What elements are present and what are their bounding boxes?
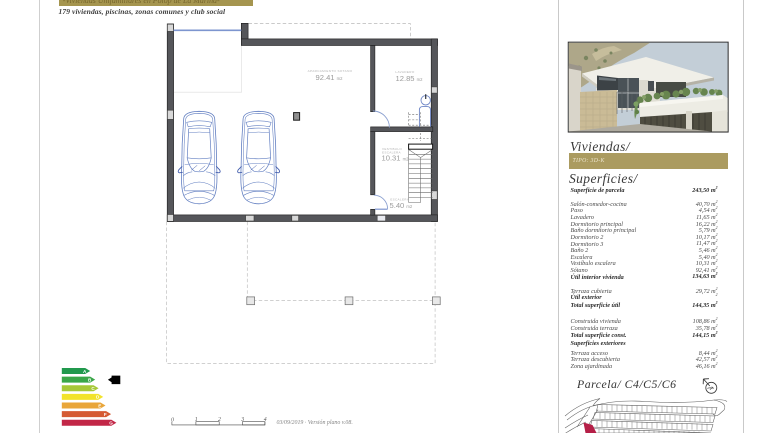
svg-text:10.31 m2: 10.31 m2 <box>382 154 410 163</box>
svg-text:12.85 m2: 12.85 m2 <box>396 74 424 83</box>
svg-text:G: G <box>109 421 113 426</box>
svg-text:2: 2 <box>218 417 221 423</box>
svg-text:E: E <box>98 403 101 408</box>
svg-text:4: 4 <box>264 416 267 423</box>
svg-text:1: 1 <box>195 417 198 423</box>
svg-text:F: F <box>104 412 107 417</box>
svg-text:0: 0 <box>171 417 174 423</box>
svg-text:LAVADERO: LAVADERO <box>395 70 414 74</box>
svg-text:92.41 m2: 92.41 m2 <box>316 73 344 82</box>
svg-text:3: 3 <box>240 417 244 423</box>
